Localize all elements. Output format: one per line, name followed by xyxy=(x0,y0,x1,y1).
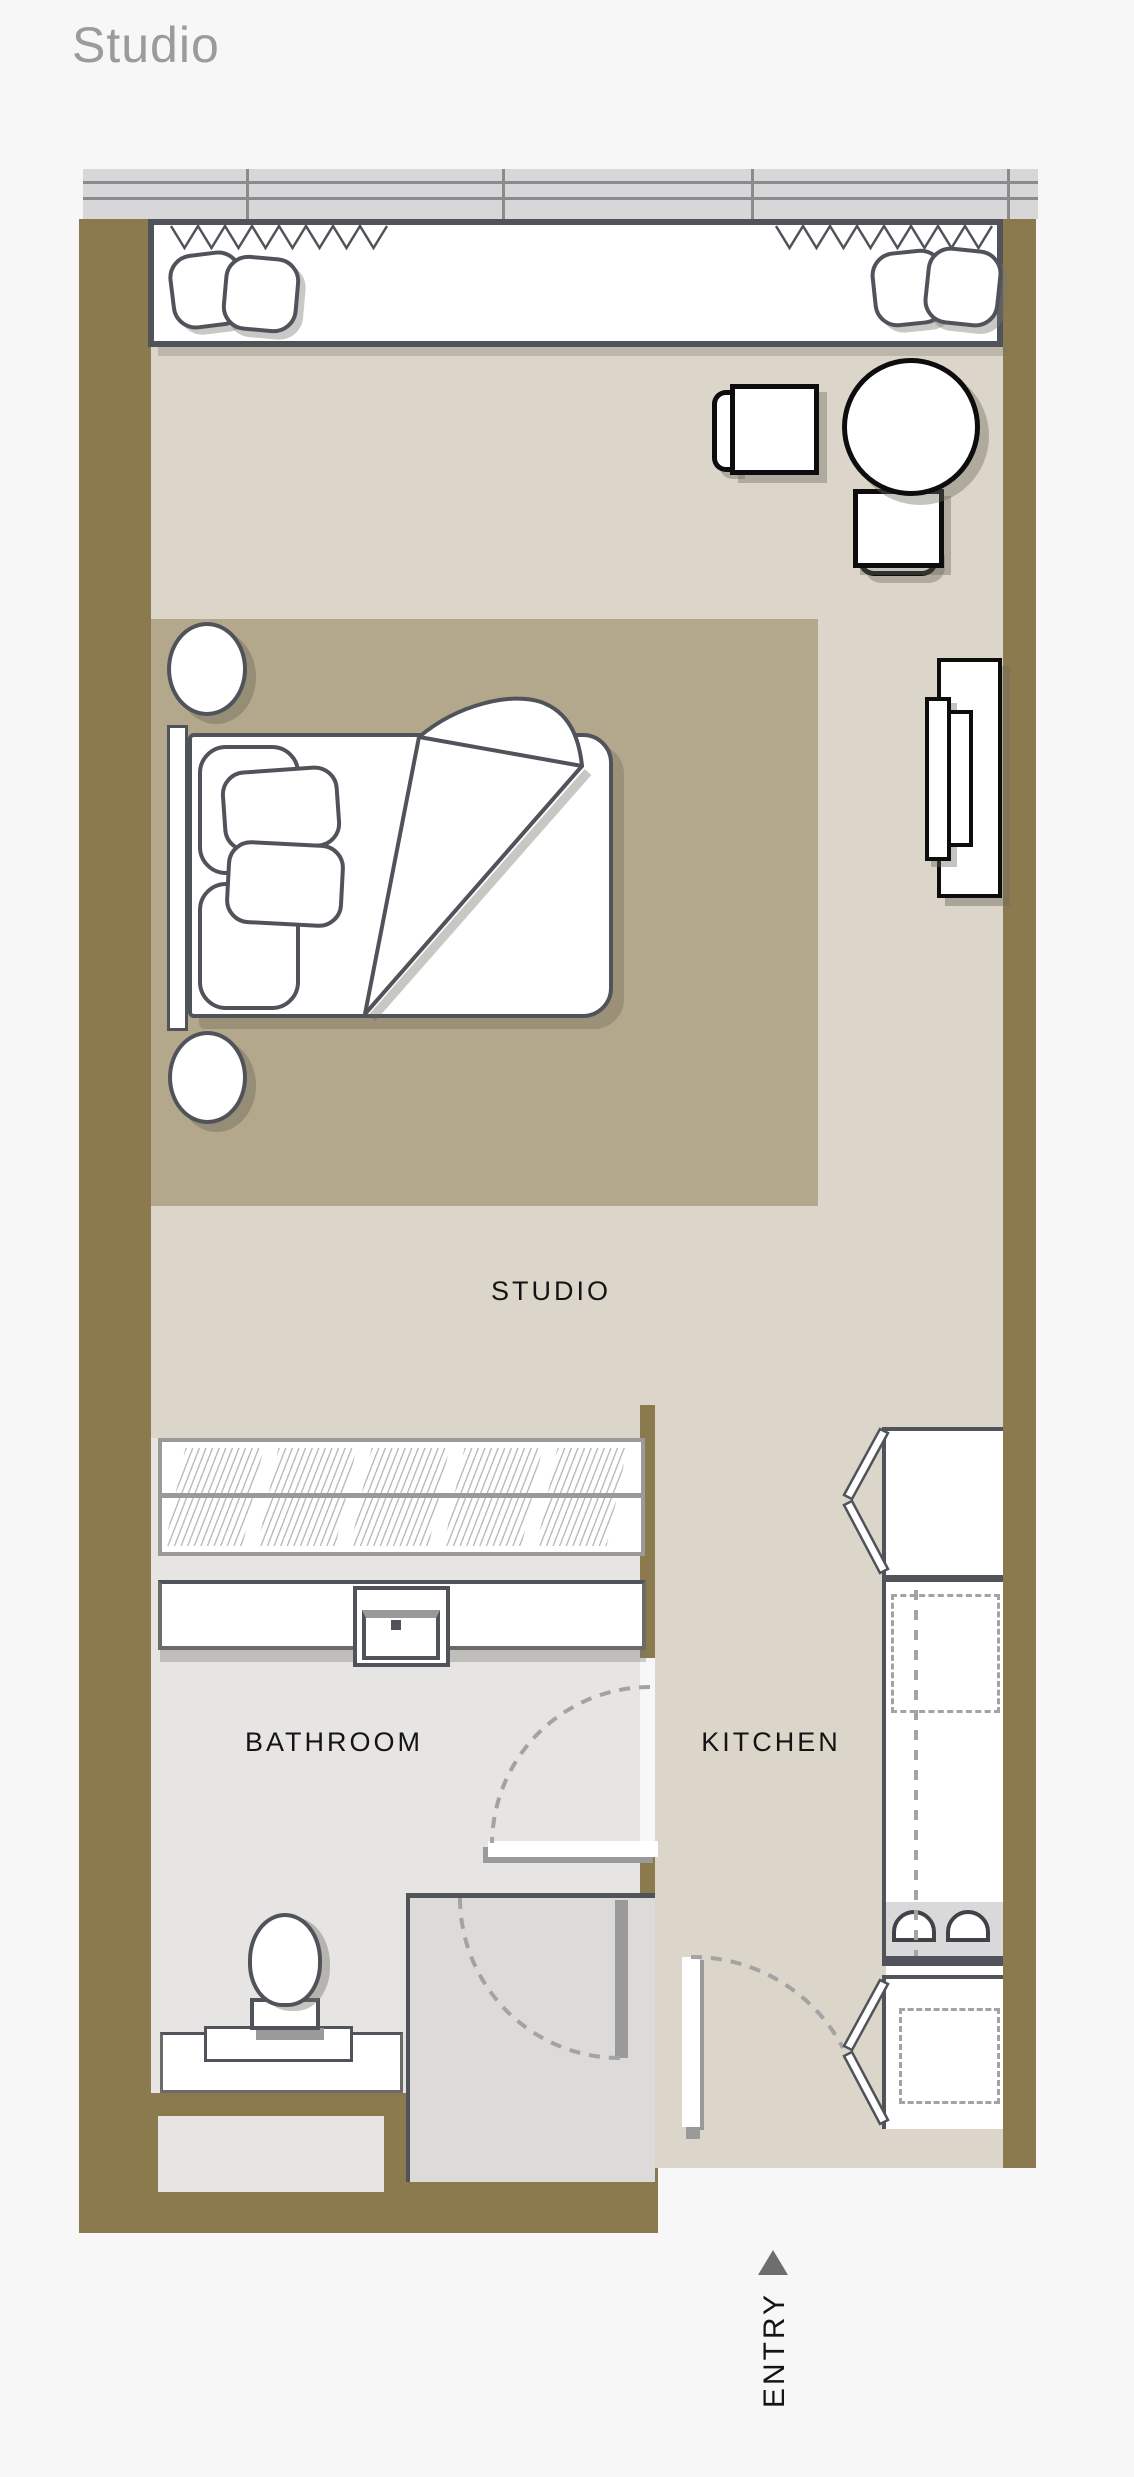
window-mullion xyxy=(1007,169,1010,219)
bed-headboard xyxy=(167,725,188,1031)
kitchen-pantry xyxy=(882,1427,1003,1579)
studio-floor-strip xyxy=(151,1405,640,1438)
kitchen-appliance-dashed xyxy=(899,2008,1000,2104)
exterior-wall-right xyxy=(1003,219,1036,2168)
tv-screen xyxy=(947,710,973,847)
nightstand xyxy=(167,622,247,716)
seat-pillow xyxy=(220,253,302,335)
bed-small-pillow xyxy=(224,839,346,929)
faucet-icon xyxy=(391,1620,401,1630)
wall-niche xyxy=(158,2116,384,2192)
entry-arrow-icon xyxy=(758,2250,788,2275)
window-mullion xyxy=(751,169,754,219)
side-table xyxy=(842,358,980,496)
entry-door-leaf xyxy=(682,1957,700,2127)
kitchen-counter-divider xyxy=(882,1956,1003,1966)
floor-plan: STUDIO BATHROOM KITCHEN ENTRY xyxy=(0,0,1134,2477)
window-seat-shadow xyxy=(158,347,1008,356)
armchair xyxy=(853,489,944,568)
shower-door xyxy=(615,1900,628,2058)
studio-label: STUDIO xyxy=(411,1276,691,1307)
closet-track-line xyxy=(158,1493,645,1498)
bathroom-label: BATHROOM xyxy=(184,1727,484,1758)
kitchen-counter-gap xyxy=(886,1966,1003,1975)
armchair xyxy=(730,384,819,475)
exterior-wall-left xyxy=(79,219,151,2233)
nightstand xyxy=(168,1031,247,1124)
kitchen-appliance-dashed xyxy=(891,1594,1000,1713)
entry-door-shadow xyxy=(686,2127,700,2139)
sink-basin xyxy=(362,1610,440,1660)
bed-small-pillow xyxy=(219,764,342,854)
bathroom-door-leaf xyxy=(488,1841,658,1857)
window-mullion xyxy=(502,169,505,219)
entry-label: ENTRY xyxy=(710,2285,840,2415)
window-band-line xyxy=(83,197,1038,200)
window-mullion xyxy=(246,169,249,219)
kitchen-label: KITCHEN xyxy=(621,1727,921,1758)
window-band xyxy=(83,169,1038,219)
toilet-bowl xyxy=(248,1913,322,2007)
window-band-line xyxy=(83,181,1038,184)
seat-pillow xyxy=(921,244,1005,330)
